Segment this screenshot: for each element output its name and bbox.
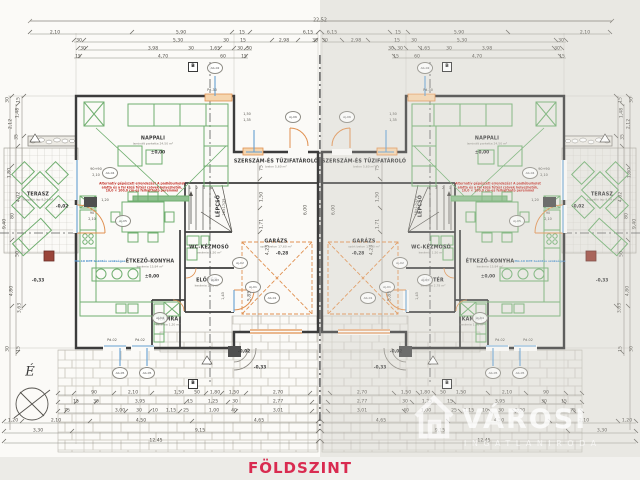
- dim-label: 15: [619, 346, 624, 352]
- dim-label: 3,30: [33, 429, 43, 434]
- room-label: ÉTKEZŐ-KONYHAkerámia 15,84 m²: [126, 260, 174, 269]
- room-label: SZERSZÁM-ÉS TŰZIFATÁROLÓbeton 5,60 m²: [322, 160, 406, 169]
- floor-title: FÖLDSZINT: [248, 459, 352, 477]
- opening-size-label: 2,10: [540, 173, 548, 177]
- marker-bubble: Ab-04: [522, 167, 538, 179]
- floorplan-unit-right-wrapper: NAPPALIlaminált parketta 24,50 m²ÉTKEZŐ-…: [320, 0, 640, 457]
- dim-label: 3,95: [135, 400, 145, 405]
- dim-label: 30: [388, 47, 394, 52]
- dim-label: 1,50: [401, 391, 411, 396]
- dim-label: 35: [621, 134, 626, 140]
- dim-label: 5,85: [248, 291, 253, 301]
- opening-size-label: 1,35: [243, 118, 251, 122]
- dim-label: 2,12: [9, 119, 14, 129]
- dim-label: 30: [232, 400, 238, 405]
- dim-label: 15: [393, 55, 399, 60]
- dim-label: 4,23: [266, 245, 271, 255]
- dim-label: 30: [93, 400, 99, 405]
- marker-bubble: Aj-03: [207, 274, 223, 286]
- dim-label: 30: [630, 97, 635, 103]
- level-label: -0,33: [596, 279, 608, 284]
- dim-label: 30: [446, 47, 452, 52]
- section-marker-b: B: [442, 62, 452, 72]
- marker-bubble: Aj-05: [115, 215, 131, 227]
- dim-label: 15: [73, 400, 79, 405]
- dim-label: 4,02: [17, 192, 22, 202]
- dim-label: 15: [619, 97, 624, 103]
- dim-label: 1,80: [8, 168, 13, 178]
- dim-label: 30: [554, 47, 560, 52]
- dim-label: 6,00: [304, 205, 309, 215]
- dim-label: 2,77: [357, 400, 367, 405]
- marker-bubble: Ab-05: [139, 367, 155, 379]
- dim-label: 2,10: [128, 391, 138, 396]
- dim-label: 4,02: [619, 192, 624, 202]
- dim-label: 30: [246, 47, 252, 52]
- dim-label: 3,01: [357, 409, 367, 414]
- level-label: ±0,00: [481, 275, 495, 280]
- dim-label: 4,65: [376, 419, 386, 424]
- marker-bubble: Ab-01: [264, 292, 280, 304]
- marker-bubble: Ab-01: [360, 292, 376, 304]
- opening-size-label: Pd-02: [495, 338, 505, 342]
- opening-size-label: 2,10: [544, 217, 552, 221]
- dim-label: 1,48: [16, 108, 21, 118]
- marker-bubble: Ab-05: [112, 367, 128, 379]
- opening-size-label: 1,50: [389, 112, 397, 116]
- section-marker-b: B: [442, 379, 452, 389]
- dim-label: 1,65: [210, 47, 220, 52]
- marker-bubble: Ab-02: [207, 62, 223, 74]
- dim-label: 4,80: [626, 286, 631, 296]
- room-label: ÉTKEZŐ-KONYHAkerámia 15,84 m²: [466, 260, 514, 269]
- opening-size-label: 1,43: [221, 292, 225, 300]
- room-label: WC-KÉZMOSÓkerámia 1,50 m²: [189, 246, 229, 255]
- dim-label: 1,25: [208, 400, 218, 405]
- level-label: -0,33: [32, 279, 44, 284]
- dim-label: 3,98: [148, 47, 158, 52]
- dim-label: 80: [625, 213, 630, 219]
- dim-label: 80: [11, 213, 16, 219]
- dim-label: 75: [376, 165, 381, 171]
- room-label: NAPPALIlaminált parketta 24,50 m²: [467, 137, 507, 146]
- watermark-name: VÁROSI: [462, 404, 587, 435]
- dim-label: 15: [241, 55, 247, 60]
- watermark: VÁROSI INGATLANIRODA: [412, 392, 632, 458]
- dim-label: 5,85: [388, 291, 393, 301]
- room-label: NAPPALIlaminált parketta 24,50 m²: [133, 137, 173, 146]
- dim-label: 2,70: [357, 391, 367, 396]
- dim-label: 9,40: [3, 219, 8, 229]
- dim-label: 35: [15, 134, 20, 140]
- level-label: ±0,00: [145, 275, 159, 280]
- opening-size-label: 90: [546, 211, 550, 215]
- opening-size-label: 1,20: [101, 198, 109, 202]
- opening-size-label: 2,10: [88, 217, 96, 221]
- opening-size-label: Pd-02: [107, 338, 117, 342]
- section-marker-b: B: [188, 62, 198, 72]
- stair-number: 3: [435, 186, 437, 190]
- marker-bubble: Aj-04: [472, 312, 488, 324]
- opening-size-label: 1,35: [389, 118, 397, 122]
- dim-label: 1,50: [174, 391, 184, 396]
- room-label: GARÁZSszórt beton 17,60 m²: [348, 240, 380, 249]
- stair-number: 4: [428, 186, 430, 190]
- dim-label: 1,65: [420, 47, 430, 52]
- dim-label: 3,98: [482, 47, 492, 52]
- room-label: TERASZfagyálló lap 9,24 m²: [587, 193, 617, 202]
- opening-size-label: 90: [90, 211, 94, 215]
- marker-bubble: Aj-04: [152, 312, 168, 324]
- dim-label: 50: [620, 251, 625, 257]
- level-label: -0,02: [238, 350, 250, 355]
- floorplan-unit-mirrored: NAPPALIlaminált parketta 24,50 m²ÉTKEZŐ-…: [320, 0, 640, 457]
- dim-label: 30: [237, 47, 243, 52]
- level-label: -0,02: [56, 205, 68, 210]
- dim-label: 1,71: [376, 219, 381, 229]
- dim-label: 60: [220, 55, 226, 60]
- dim-label: 1,48: [620, 108, 625, 118]
- blueprint-canvas: NAPPALIlaminált parketta 24,50 m²ÉTKEZŐ-…: [0, 0, 640, 480]
- dim-label: 2,70: [273, 391, 283, 396]
- marker-bubble: Aj-02: [232, 257, 248, 269]
- dim-label: 30: [136, 409, 142, 414]
- dim-label: 75: [64, 409, 70, 414]
- dim-label: 30: [80, 47, 86, 52]
- dim-label: 40: [403, 409, 409, 414]
- dim-label: 1,80: [628, 168, 633, 178]
- opening-size-label: Pd-30: [423, 88, 433, 92]
- blue-annotation: Mü-10 KPE bekötés szükséges: [514, 259, 565, 263]
- dim-label: 15: [75, 55, 81, 60]
- dim-label: 30: [397, 47, 403, 52]
- dim-label: 75: [260, 165, 265, 171]
- dim-label: 1,50: [376, 192, 381, 202]
- opening-size-label: 1,43: [415, 292, 419, 300]
- room-label: SZERSZÁM-ÉS TŰZIFATÁROLÓbeton 5,60 m²: [234, 160, 318, 169]
- opening-size-label: 18×17/29: [414, 199, 418, 216]
- dim-label: 3,63: [18, 303, 23, 313]
- blue-annotation: Mü-10 KPE bekötés szükséges: [74, 259, 125, 263]
- dim-label: 9,15: [195, 429, 205, 434]
- level-label: -0,33: [374, 366, 386, 371]
- dim-label: 3,01: [273, 409, 283, 414]
- dim-label: 50: [194, 391, 200, 396]
- marker-bubble: Ab-04: [102, 167, 118, 179]
- opening-size-label: 2,10: [92, 173, 100, 177]
- opening-size-label: 1,50: [243, 112, 251, 116]
- room-label: LÉPCSŐ: [217, 195, 222, 217]
- dim-label: 15: [17, 97, 22, 103]
- dim-label: 4,80: [10, 286, 15, 296]
- dim-label: 4,50: [136, 419, 146, 424]
- marker-bubble: Ab-02: [417, 62, 433, 74]
- marker-bubble: Aj-05: [509, 215, 525, 227]
- room-label: LÉPCSŐ: [419, 195, 424, 217]
- opening-size-label: Pd-30: [207, 88, 217, 92]
- opening-size-label: 90+90: [90, 167, 101, 171]
- dim-label: 4,23: [370, 245, 375, 255]
- dim-label: 25: [183, 409, 189, 414]
- opening-size-label: Pd-02: [135, 338, 145, 342]
- dim-label: 30: [6, 97, 11, 103]
- level-label: -0,33: [254, 366, 266, 371]
- dim-label: 40: [231, 409, 237, 414]
- dim-label: 9,40: [633, 219, 638, 229]
- dim-label: 15: [187, 400, 193, 405]
- room-label: TERASZfagyálló lap 9,24 m²: [23, 193, 53, 202]
- stair-number: 2: [442, 186, 444, 190]
- dim-label: 4,70: [472, 55, 482, 60]
- dim-label: 6,00: [332, 205, 337, 215]
- dim-label: 50: [16, 251, 21, 257]
- north-label: É: [25, 365, 35, 380]
- opening-size-label: Pd-02: [523, 338, 533, 342]
- marker-bubble: Ab-05: [512, 367, 528, 379]
- level-label: ±0,00: [151, 151, 165, 156]
- opening-size-label: 90+90: [538, 167, 549, 171]
- marker-bubble: Aj-02: [392, 257, 408, 269]
- dim-label: 1,00: [209, 409, 219, 414]
- red-annotation: Alternatív gépészeti elrendezés! A padló…: [99, 182, 185, 193]
- marker-bubble: Aj-03: [417, 274, 433, 286]
- level-label: -0,02: [390, 350, 402, 355]
- dim-label: 30: [630, 346, 635, 352]
- stair-number: 1: [449, 186, 451, 190]
- opening-size-label: 1,20: [531, 198, 539, 202]
- level-label: -0,02: [572, 205, 584, 210]
- dim-label: 30: [402, 400, 408, 405]
- dim-label: 12,45: [149, 439, 162, 444]
- section-marker-b: B: [188, 379, 198, 389]
- stair-number: 1: [189, 186, 191, 190]
- dim-label: 3,63: [618, 303, 623, 313]
- dim-label: 1,15: [166, 409, 176, 414]
- labels-layer: NAPPALIlaminált parketta 24,50 m²ÉTKEZŐ-…: [320, 0, 640, 457]
- red-annotation: Alternatív gépészeti elrendezés! A padló…: [455, 182, 541, 193]
- overall-dimension-label: 22,52: [313, 19, 327, 24]
- opening-size-label: 18×17/29: [222, 199, 226, 216]
- watermark-subtitle: INGATLANIRODA: [464, 439, 602, 448]
- dim-label: 90: [91, 391, 97, 396]
- stair-number: 3: [203, 186, 205, 190]
- dim-label: 1,50: [260, 192, 265, 202]
- dim-label: 2,12: [627, 119, 632, 129]
- stair-number: 4: [210, 186, 212, 190]
- dim-label: 2,77: [273, 400, 283, 405]
- dim-label: 60: [414, 55, 420, 60]
- marker-bubble: Ab-05: [485, 367, 501, 379]
- watermark-house-icon: [412, 392, 456, 442]
- marker-bubble: Aj-06: [339, 111, 355, 123]
- dim-label: 4,65: [254, 419, 264, 424]
- dim-label: 15: [17, 346, 22, 352]
- dim-label: 30: [6, 346, 11, 352]
- level-label: ±0,00: [475, 151, 489, 156]
- dim-label: 30: [188, 47, 194, 52]
- dim-label: 3,00: [115, 409, 125, 414]
- dim-label: 1,50: [229, 391, 239, 396]
- level-label: -0,28: [276, 252, 288, 257]
- dim-label: 1,80: [210, 391, 220, 396]
- room-label: WC-KÉZMOSÓkerámia 1,50 m²: [411, 246, 451, 255]
- stair-number: 2: [196, 186, 198, 190]
- dim-label: 15: [559, 55, 565, 60]
- level-label: -0,28: [352, 252, 364, 257]
- dim-label: 10: [152, 409, 158, 414]
- marker-bubble: Aj-06: [285, 111, 301, 123]
- dim-label: 1,71: [260, 219, 265, 229]
- dim-label: 4,70: [158, 55, 168, 60]
